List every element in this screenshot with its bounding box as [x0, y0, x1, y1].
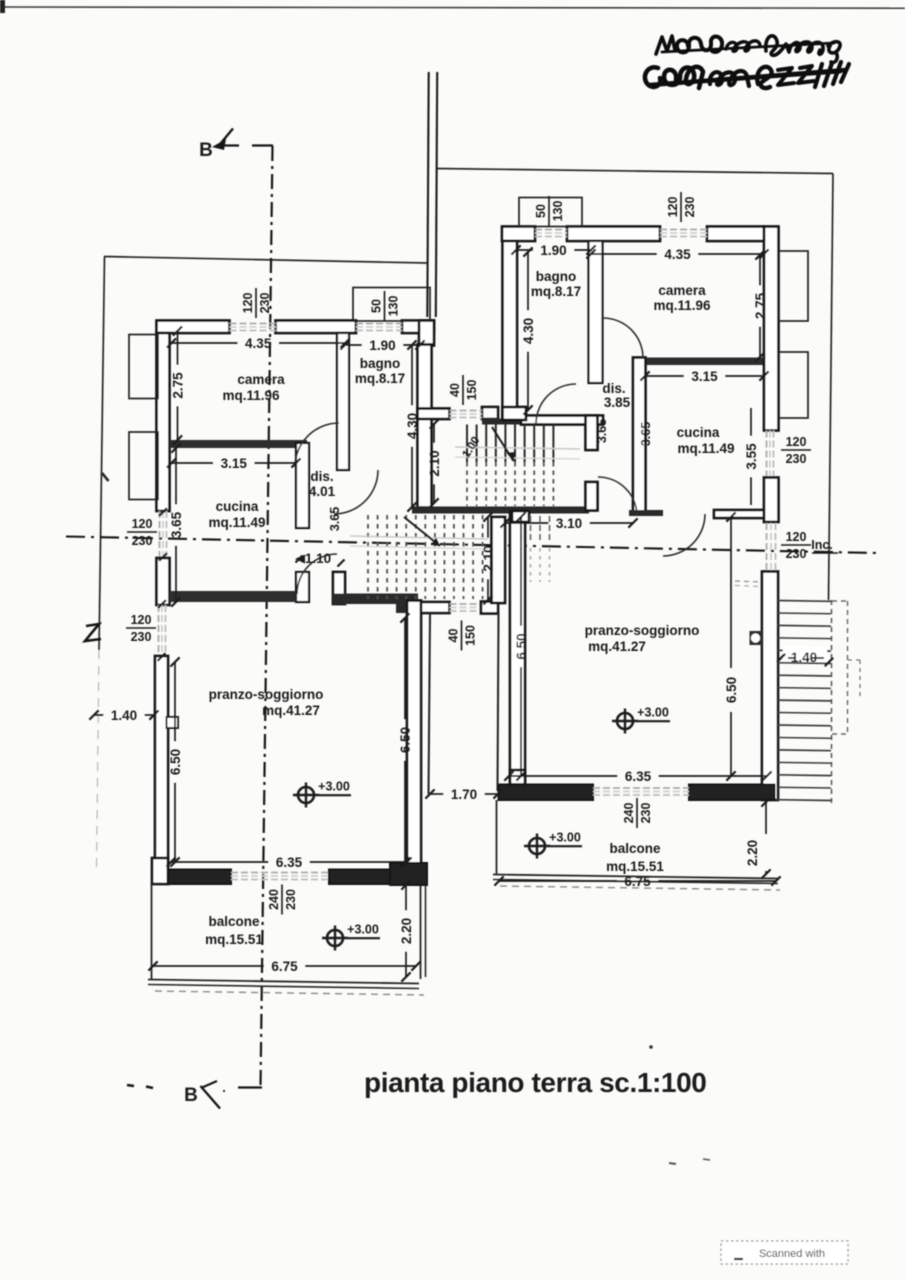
svg-text:6.50: 6.50 [724, 677, 739, 703]
svg-text:mq.11.96: mq.11.96 [653, 298, 711, 313]
svg-text:1.90: 1.90 [540, 243, 566, 258]
svg-text:mq.15.51: mq.15.51 [205, 932, 263, 947]
svg-text:pranzo-soggiorno: pranzo-soggiorno [209, 687, 324, 702]
svg-text:130: 130 [551, 201, 565, 222]
svg-text:120: 120 [786, 530, 807, 544]
svg-text:50: 50 [370, 299, 384, 313]
svg-text:B: B [199, 140, 213, 161]
svg-text:4.35: 4.35 [664, 247, 691, 262]
svg-text:+3.00: +3.00 [549, 831, 581, 845]
svg-text:bagno: bagno [360, 356, 401, 371]
svg-text:3.85: 3.85 [604, 395, 631, 410]
svg-text:3.10: 3.10 [556, 516, 582, 531]
svg-text:Inc.: Inc. [811, 538, 833, 552]
svg-text:camera: camera [658, 283, 706, 298]
svg-text:3.55: 3.55 [744, 443, 759, 470]
svg-text:dis.: dis. [602, 381, 625, 396]
svg-text:2.20: 2.20 [745, 840, 760, 866]
svg-text:mq.8.17: mq.8.17 [355, 371, 405, 386]
svg-text:230: 230 [683, 197, 697, 218]
svg-text:mq.11.49: mq.11.49 [208, 515, 265, 530]
svg-text:Scanned with: Scanned with [759, 1248, 825, 1260]
svg-text:120: 120 [241, 293, 255, 314]
svg-text:6.75: 6.75 [624, 874, 651, 889]
svg-text:bagno: bagno [536, 269, 577, 284]
svg-text:240: 240 [622, 803, 636, 824]
svg-text:balcone: balcone [609, 841, 661, 856]
svg-text:6.50: 6.50 [514, 633, 529, 659]
svg-text:1.70: 1.70 [451, 787, 477, 802]
svg-text:mq.15.51: mq.15.51 [606, 859, 664, 874]
svg-text:2.10: 2.10 [427, 450, 442, 476]
svg-text:2.10: 2.10 [481, 545, 496, 571]
svg-text:50: 50 [534, 204, 548, 218]
svg-text:230: 230 [258, 293, 272, 314]
svg-text:.: . [222, 1080, 226, 1095]
svg-text:camera: camera [237, 372, 285, 387]
svg-text:mq.41.27: mq.41.27 [588, 639, 646, 654]
svg-text:mq.8.17: mq.8.17 [531, 284, 581, 299]
svg-text:1.90: 1.90 [369, 338, 395, 353]
svg-text:mq.11.49: mq.11.49 [677, 441, 734, 456]
svg-text:6.50: 6.50 [168, 749, 183, 775]
svg-text:2.20: 2.20 [399, 918, 414, 944]
svg-text:B: B [184, 1085, 198, 1106]
svg-text:2.75: 2.75 [753, 292, 768, 319]
svg-text:120: 120 [666, 197, 680, 218]
svg-text:balcone: balcone [208, 914, 260, 929]
svg-text:4.01: 4.01 [309, 484, 336, 499]
svg-text:230: 230 [131, 630, 152, 644]
svg-text:3.15: 3.15 [691, 369, 718, 384]
svg-text:40: 40 [448, 383, 462, 397]
svg-text:40: 40 [447, 629, 461, 643]
svg-text:120: 120 [786, 435, 807, 449]
svg-text:6.50: 6.50 [398, 727, 413, 753]
svg-text:3.65: 3.65 [595, 419, 609, 443]
svg-text:mq.41.27: mq.41.27 [262, 703, 320, 718]
svg-text:150: 150 [464, 625, 478, 646]
svg-text:150: 150 [465, 380, 479, 401]
svg-text:4.30: 4.30 [521, 318, 536, 344]
svg-text:6.75: 6.75 [271, 959, 298, 974]
svg-text:130: 130 [387, 296, 401, 317]
svg-text:230: 230 [786, 452, 807, 466]
svg-text:dis.: dis. [310, 469, 333, 484]
svg-text:3.15: 3.15 [221, 456, 248, 471]
svg-text:6.35: 6.35 [276, 855, 303, 870]
svg-text:230: 230 [786, 547, 807, 561]
svg-text:cucina: cucina [677, 425, 720, 440]
svg-text:120: 120 [131, 613, 152, 627]
svg-text:mq.11.96: mq.11.96 [222, 388, 280, 403]
svg-text:4.30: 4.30 [405, 413, 420, 439]
svg-text:cucina: cucina [216, 499, 259, 514]
svg-text:2.75: 2.75 [171, 372, 186, 399]
svg-text:230: 230 [132, 534, 153, 548]
svg-text:3.65: 3.65 [169, 511, 184, 538]
svg-text:3.65: 3.65 [639, 422, 653, 446]
svg-text:+3.00: +3.00 [347, 923, 379, 937]
svg-text:1.40: 1.40 [111, 708, 137, 723]
svg-text:3.65: 3.65 [328, 507, 342, 531]
svg-text:230: 230 [639, 803, 653, 824]
svg-text:pianta piano terra sc.1:100: pianta piano terra sc.1:100 [364, 1067, 706, 1098]
svg-text:pranzo-soggiorno: pranzo-soggiorno [585, 623, 700, 638]
svg-text:240: 240 [267, 889, 281, 910]
svg-text:230: 230 [284, 889, 298, 910]
svg-text:6.35: 6.35 [625, 769, 652, 784]
svg-text:4.35: 4.35 [245, 336, 272, 351]
svg-text:+3.00: +3.00 [637, 706, 669, 720]
svg-text:+3.00: +3.00 [318, 780, 350, 794]
svg-text:120: 120 [132, 517, 153, 531]
svg-text:1.10: 1.10 [305, 551, 331, 566]
